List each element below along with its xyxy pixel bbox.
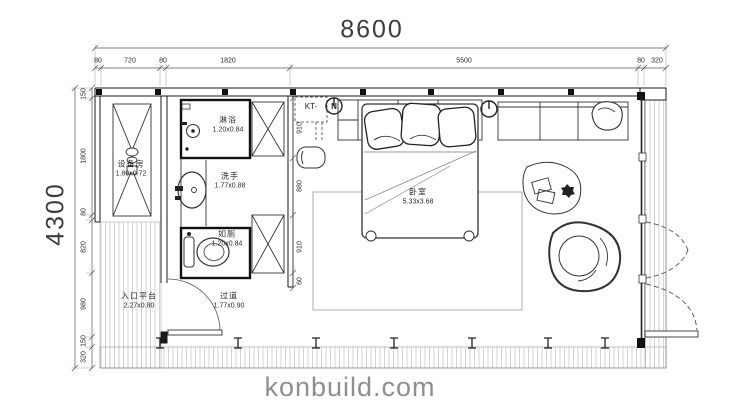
dim-left-6: 320 [81,351,88,363]
dim-top-2: 80 [159,58,167,65]
dim-left-2: 80 [81,208,88,216]
dim-inner-2: 910 [297,241,304,253]
dim-left-0: 150 [81,88,88,100]
room-label-entry: 入口平台 2.27x0.80 [121,291,157,310]
dim-top-1: 720 [124,58,136,65]
dim-top-4: 5500 [456,58,472,65]
watermark: konbuild.com [0,372,700,403]
bed [362,103,478,241]
floorplan-page: KT- N 8600 4300 80 720 80 1820 5500 80 3… [0,0,736,418]
room-label-toilet: 如厕 1.20x0.84 [212,229,243,248]
floorplan-drawing: KT- N [0,0,736,418]
right-door-leaf [645,331,698,337]
dim-top-5: 80 [637,58,645,65]
room-label-shower: 淋浴 1.20x0.84 [213,115,244,134]
dim-left-4: 980 [81,298,88,310]
faucet [175,186,183,191]
light-symbol [481,101,497,117]
dim-left-5: 150 [81,335,88,347]
entry-door-leaf [168,330,222,335]
room-label-corridor: 过道 1.77x0.90 [214,291,245,310]
coffee-table [523,162,581,214]
dim-top-0: 80 [94,58,102,65]
dim-top-6: 320 [651,58,663,65]
right-deck [645,100,666,368]
room-label-equipment: 设备房 1.80x0.72 [116,159,147,178]
wash-area [175,158,206,228]
pillows [363,103,476,151]
closet-bottom [252,215,284,273]
desk-chair [592,102,622,130]
dim-inner-3: 60 [297,277,304,285]
lounge-chair [549,222,620,291]
room-label-bedroom: 卧室 5.33x3.68 [403,187,434,206]
dim-inner-0: 910 [297,122,304,134]
stool [297,147,325,168]
dim-left-1: 1800 [81,148,88,164]
glass-wall [637,96,646,348]
overall-width-dim: 8600 [340,16,404,45]
kt-label: KT- [305,102,318,111]
dim-left-3: 820 [81,241,88,253]
dim-top-3: 1820 [220,58,236,65]
room-label-wash: 洗手 1.77x0.88 [215,171,246,190]
closet-top [252,102,284,156]
wall-posts [96,89,645,100]
footings [156,338,609,348]
kt-symbol-letter: N [331,102,337,111]
bottom-deck [100,347,666,368]
dim-inner-1: 880 [297,180,304,192]
overall-height-dim: 4300 [42,182,71,246]
